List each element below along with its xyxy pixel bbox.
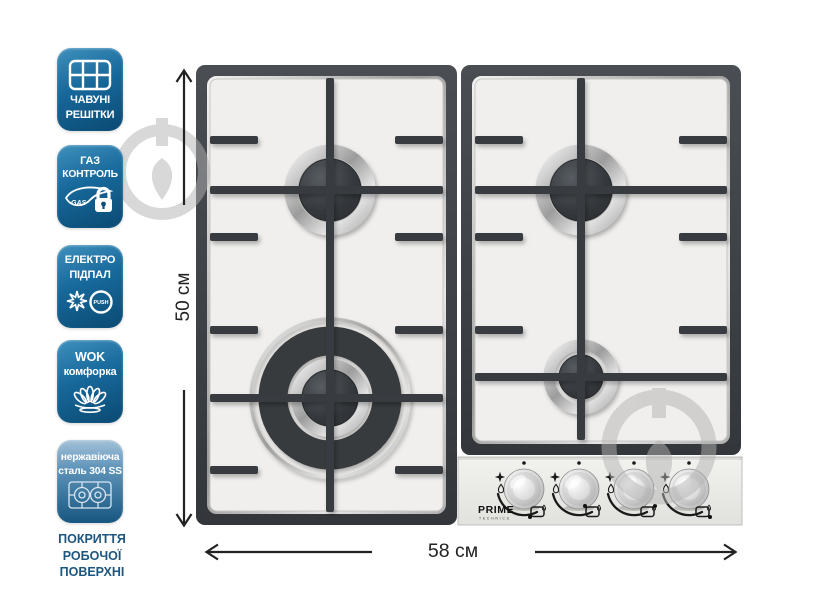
spark-icon: PUSH <box>65 283 115 319</box>
gas-hob-image: PRIME TECHNICS <box>195 63 743 530</box>
badge-label: комфорка <box>64 366 117 378</box>
badge-label: РЕШІТКИ <box>66 109 115 121</box>
height-dimension-label: 50 см <box>173 257 195 337</box>
svg-text:PUSH: PUSH <box>94 300 109 306</box>
store-watermark-small <box>120 118 204 214</box>
badge-label: нержавіюча <box>61 452 120 464</box>
badge-cast-iron-grates: ЧАВУНІ РЕШІТКИ <box>57 48 123 131</box>
badge-label: ПІДПАЛ <box>69 269 110 281</box>
badge-label: сталь 304 SS <box>58 466 122 478</box>
badge-label: WOK <box>75 350 105 364</box>
svg-text:GAS: GAS <box>71 200 87 207</box>
badge-label: ЧАВУНІ <box>70 94 110 106</box>
caption-line: ПОВЕРХНІ <box>40 564 144 581</box>
brand-logo: PRIME <box>478 504 514 516</box>
badge-gas-control: ГАЗ КОНТРОЛЬ GAS <box>57 145 123 228</box>
badge-electric-ignition: ЕЛЕКТРО ПІДПАЛ PUSH <box>57 245 123 328</box>
badge-wok-burner: WOK комфорка <box>57 340 123 423</box>
caption-line: ПОКРИТТЯ <box>40 531 144 548</box>
badge-stainless-steel: нержавіюча сталь 304 SS <box>57 440 123 523</box>
badge-label: ГАЗ <box>80 155 100 167</box>
gas-lock-icon: GAS <box>64 182 116 218</box>
badge-label: КОНТРОЛЬ <box>62 169 118 181</box>
width-dimension-label: 58 см <box>409 540 497 563</box>
hob-right-section: PRIME TECHNICS <box>458 65 742 525</box>
surface-coating-caption: ПОКРИТТЯ РОБОЧОЇ ПОВЕРХНІ <box>40 531 144 581</box>
control-panel: PRIME TECHNICS <box>458 457 742 525</box>
brand-logo-sub: TECHNICS <box>479 517 511 521</box>
grate-icon <box>67 58 113 92</box>
stainless-hob-icon <box>66 479 114 511</box>
hob-left-section <box>196 65 457 525</box>
badge-label: ЕЛЕКТРО <box>65 254 115 266</box>
caption-line: РОБОЧОЇ <box>40 548 144 565</box>
wok-flame-icon <box>67 381 113 413</box>
